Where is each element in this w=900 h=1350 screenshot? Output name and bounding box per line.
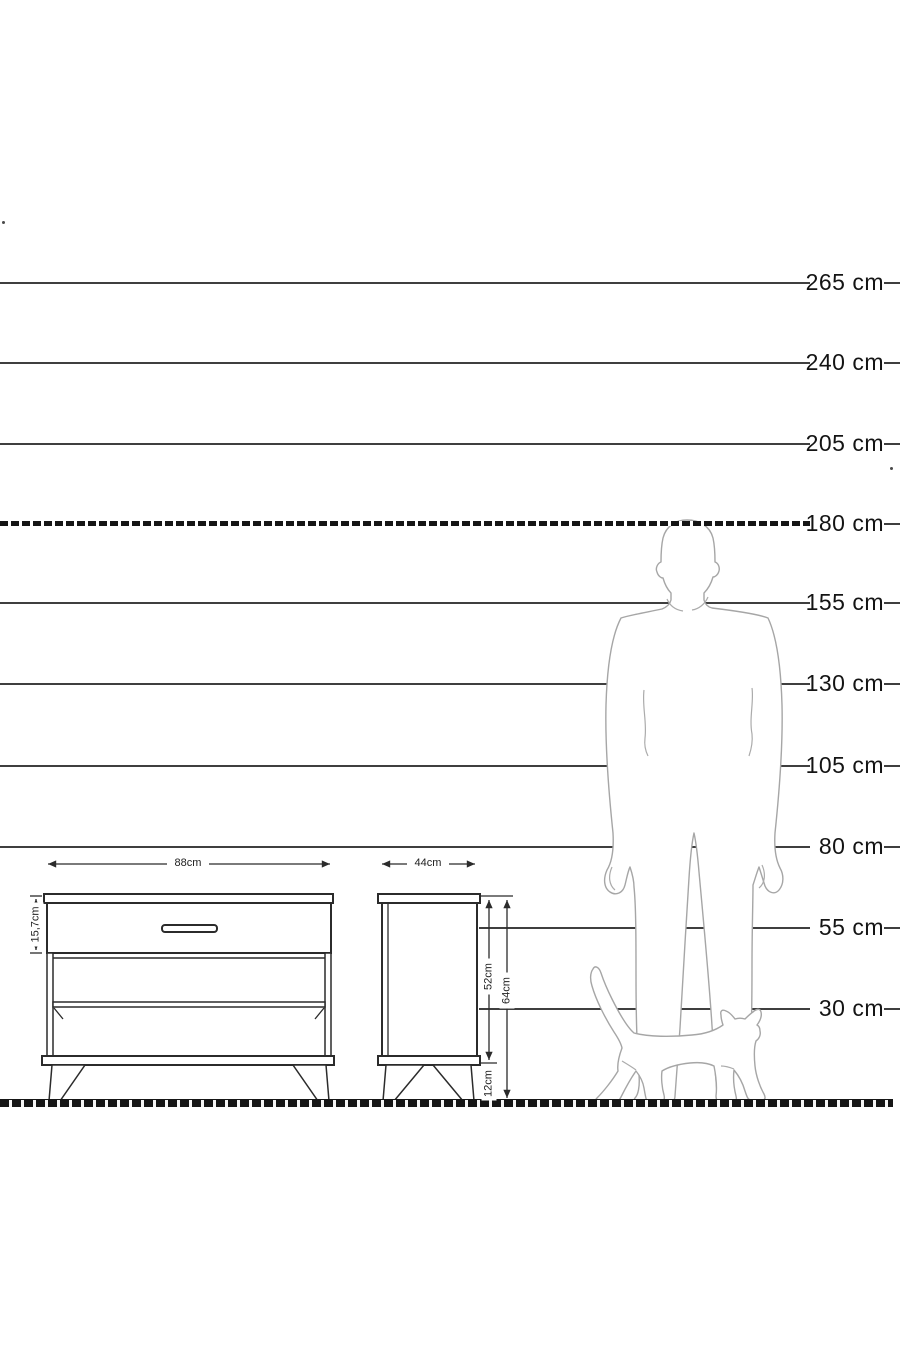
height-label-80: 80 cm bbox=[774, 833, 884, 859]
drawer-height-label: 15,7cm bbox=[29, 903, 44, 947]
front-left-side-panel bbox=[47, 953, 53, 1056]
height-line-180-dashed bbox=[0, 521, 810, 526]
front-right-leg bbox=[293, 1065, 329, 1101]
front-left-leg bbox=[49, 1065, 85, 1101]
cabinet-front-view bbox=[42, 894, 334, 1101]
side-right-leg bbox=[433, 1065, 474, 1101]
height-tick-205 bbox=[884, 443, 900, 445]
height-label-240: 240 cm bbox=[774, 349, 884, 375]
height-tick-30 bbox=[884, 1008, 900, 1010]
front-top-panel bbox=[44, 894, 333, 903]
side-bottom-panel bbox=[378, 1056, 480, 1065]
height-label-105: 105 cm bbox=[774, 752, 884, 778]
height-label-205: 205 cm bbox=[774, 430, 884, 456]
front-left-corner-brace bbox=[54, 1008, 63, 1019]
leg-height-label: 12cm bbox=[482, 1067, 497, 1101]
height-tick-105 bbox=[884, 765, 900, 767]
side-body-panel bbox=[382, 903, 477, 1056]
height-tick-180 bbox=[884, 523, 900, 525]
height-tick-130 bbox=[884, 683, 900, 685]
total-height-label: 64cm bbox=[500, 973, 515, 1009]
height-tick-55 bbox=[884, 927, 900, 929]
height-tick-80 bbox=[884, 846, 900, 848]
front-right-corner-brace bbox=[315, 1008, 324, 1019]
side-left-leg bbox=[383, 1065, 424, 1101]
height-label-130: 130 cm bbox=[774, 670, 884, 696]
front-width-label: 88cm bbox=[167, 856, 209, 871]
front-shelf bbox=[53, 1002, 325, 1007]
diagram-artwork bbox=[0, 0, 900, 1350]
body-height-label: 52cm bbox=[482, 959, 497, 995]
height-label-180: 180 cm bbox=[774, 510, 884, 536]
cabinet-side-view bbox=[378, 894, 480, 1101]
height-tick-155 bbox=[884, 602, 900, 604]
height-tick-265 bbox=[884, 282, 900, 284]
front-right-side-panel bbox=[325, 953, 331, 1056]
height-label-265: 265 cm bbox=[774, 269, 884, 295]
drawer-handle bbox=[162, 925, 217, 932]
height-label-155: 155 cm bbox=[774, 589, 884, 615]
front-bottom-panel bbox=[42, 1056, 334, 1065]
dimension-diagram: 265 cm 240 cm 205 cm 180 cm 155 cm 130 c… bbox=[0, 0, 900, 1350]
side-top-panel bbox=[378, 894, 480, 903]
height-label-30: 30 cm bbox=[774, 995, 884, 1021]
ground-line bbox=[0, 1099, 893, 1107]
side-depth-label: 44cm bbox=[407, 856, 449, 871]
height-tick-240 bbox=[884, 362, 900, 364]
height-label-55: 55 cm bbox=[774, 914, 884, 940]
